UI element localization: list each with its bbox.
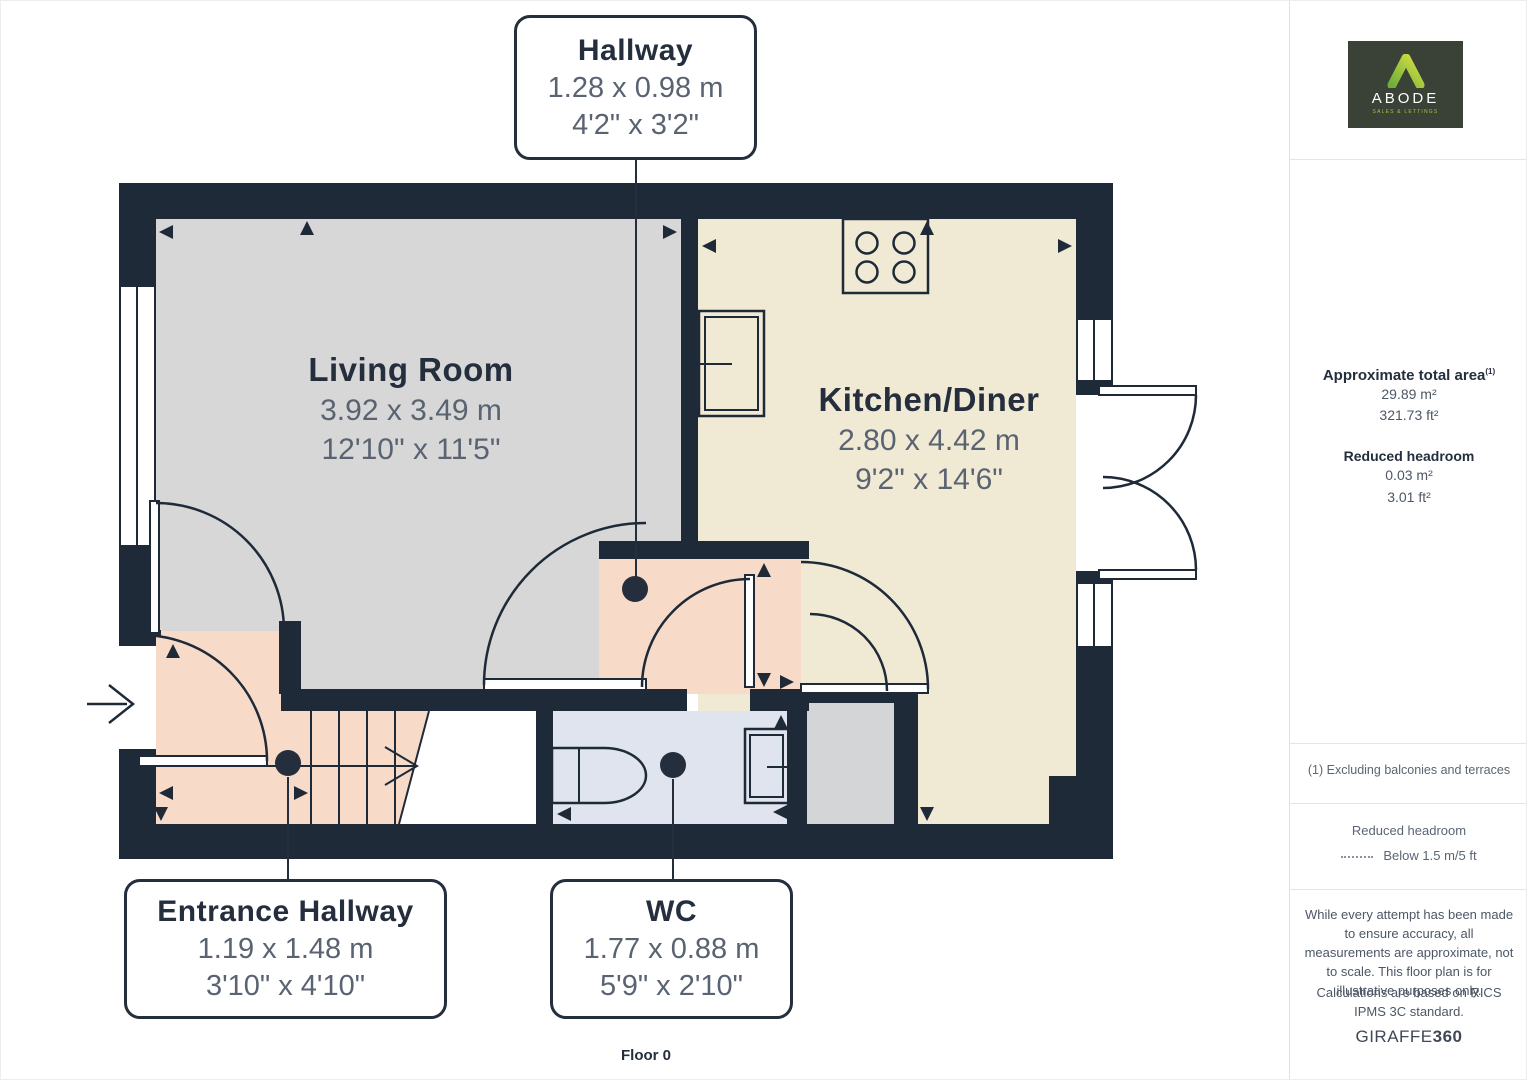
total-area-footnote-ref: (1) xyxy=(1485,367,1495,376)
floorplan-page: Living Room 3.92 x 3.49 m 12'10" x 11'5"… xyxy=(0,0,1527,1080)
stove-icon xyxy=(843,219,928,293)
area-footnote: (1) Excluding balconies and terraces xyxy=(1290,763,1527,777)
label-anchor-dot xyxy=(660,752,686,778)
door-leaf-icon xyxy=(745,575,754,687)
hallway-callout: Hallway 1.28 x 0.98 m 4'2" x 3'2" xyxy=(514,15,757,160)
logo-tagline-text: SALES & LETTINGS xyxy=(1373,109,1439,115)
sidebar-divider xyxy=(1290,159,1527,160)
giraffe360-name: GIRAFFE xyxy=(1355,1027,1432,1046)
room-dimensions-metric: 1.19 x 1.48 m xyxy=(198,933,374,966)
reduced-headroom-ft2: 3.01 ft² xyxy=(1290,486,1527,508)
giraffe360-brand: GIRAFFE360 xyxy=(1290,1027,1527,1047)
door-leaf-icon xyxy=(150,501,159,633)
floor-label: Floor 0 xyxy=(1,1047,1291,1064)
total-area-m2: 29.89 m² xyxy=(1290,384,1527,405)
room-name: Hallway xyxy=(578,34,693,68)
sidebar-divider xyxy=(1290,889,1527,890)
area-summary: Approximate total area(1) 29.89 m² 321.7… xyxy=(1290,367,1527,508)
room-fills xyxy=(156,219,1076,824)
door-leaf-icon xyxy=(1099,570,1196,579)
dotted-line-icon xyxy=(1341,856,1373,858)
abode-logo-icon xyxy=(1384,54,1428,88)
room-dimensions-metric: 1.77 x 0.88 m xyxy=(584,933,760,966)
reduced-headroom-title: Reduced headroom xyxy=(1290,448,1527,464)
logo-brand-text: ABODE xyxy=(1372,90,1440,107)
total-area-title: Approximate total area(1) xyxy=(1290,367,1527,384)
toilet-icon xyxy=(552,748,646,803)
door-swing-arc xyxy=(1103,395,1196,488)
legend-title: Reduced headroom xyxy=(1290,823,1527,838)
legend-row: Below 1.5 m/5 ft xyxy=(1290,848,1527,863)
room-dimensions-imperial: 4'2" x 3'2" xyxy=(572,109,699,142)
giraffe360-suffix: 360 xyxy=(1433,1027,1463,1046)
door-leaf-icon xyxy=(139,756,267,766)
room-dimensions-metric: 1.28 x 0.98 m xyxy=(548,72,724,105)
disclaimer-standard: Calculations are based on RICS IPMS 3C s… xyxy=(1290,983,1527,1021)
label-anchor-dot xyxy=(275,750,301,776)
closet-floor xyxy=(807,703,894,824)
entrance-hallway-callout: Entrance Hallway 1.19 x 1.48 m 3'10" x 4… xyxy=(124,879,447,1019)
info-sidebar: ABODE SALES & LETTINGS Approximate total… xyxy=(1289,1,1527,1080)
legend-label: Below 1.5 m/5 ft xyxy=(1383,848,1476,863)
sidebar-divider xyxy=(1290,743,1527,744)
total-area-title-text: Approximate total area xyxy=(1323,367,1486,384)
label-anchor-dot xyxy=(622,576,648,602)
wc-callout: WC 1.77 x 0.88 m 5'9" x 2'10" xyxy=(550,879,793,1019)
room-name: Entrance Hallway xyxy=(157,895,413,929)
door-leaf-icon xyxy=(484,679,646,690)
room-dimensions-imperial: 3'10" x 4'10" xyxy=(206,970,365,1003)
room-dimensions-imperial: 5'9" x 2'10" xyxy=(600,970,743,1003)
agency-logo: ABODE SALES & LETTINGS xyxy=(1348,41,1463,128)
patio-door-opening xyxy=(1076,395,1113,571)
reduced-headroom-m2: 0.03 m² xyxy=(1290,464,1527,486)
total-area-ft2: 321.73 ft² xyxy=(1290,405,1527,426)
sidebar-divider xyxy=(1290,803,1527,804)
door-leaf-icon xyxy=(801,684,928,693)
door-swing-arc xyxy=(1103,477,1196,570)
room-name: WC xyxy=(646,895,697,929)
door-leaf-icon xyxy=(1099,386,1196,395)
